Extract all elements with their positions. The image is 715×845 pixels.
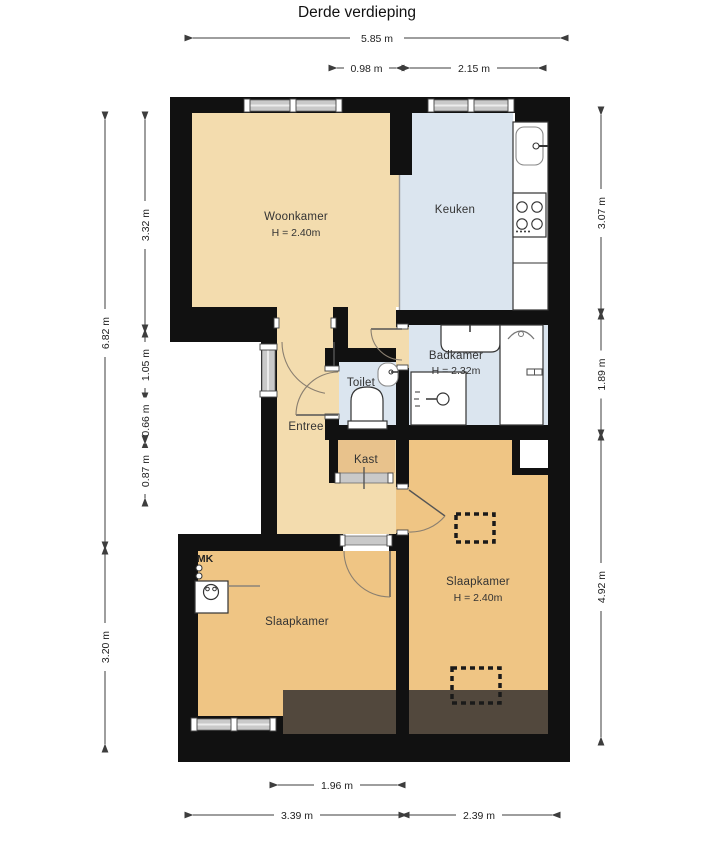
svg-text:5.85 m: 5.85 m (361, 33, 393, 45)
dim-left-inner-3: 0.66 m (138, 398, 152, 444)
room-woonkamer (192, 113, 399, 307)
svg-text:3.39 m: 3.39 m (281, 810, 313, 822)
room-slaapkamer-links-strip (198, 690, 283, 716)
label-badkamer: Badkamer (429, 350, 483, 362)
label-toilet: Toilet (347, 377, 376, 389)
svg-text:0.98 m: 0.98 m (350, 63, 382, 75)
label-woonkamer: Woonkamer (264, 211, 328, 223)
dim-bottom-roof: 1.96 m (278, 778, 397, 792)
dim-top-passage: 0.98 m (337, 61, 396, 75)
dim-left-inner-1: 3.32 m (138, 120, 152, 329)
label-slaapkamer-rechts-height: H = 2.40m (454, 592, 503, 604)
dim-right-slaapkamer: 4.92 m (594, 438, 608, 737)
label-woonkamer-height: H = 2.40m (272, 227, 321, 239)
label-slaapkamer-rechts: Slaapkamer (446, 576, 510, 588)
dim-top-overall: 5.85 m (193, 31, 560, 45)
room-slaapkamer-rechts (409, 440, 548, 690)
shower-icon (411, 372, 466, 425)
dim-left-outer-upper: 6.82 m (98, 120, 112, 546)
label-badkamer-height: H = 2.32m (432, 365, 481, 377)
dim-left-inner-4: 0.87 m (138, 444, 152, 498)
svg-text:1.05 m: 1.05 m (140, 349, 152, 381)
label-meterkast: MK (197, 553, 214, 565)
page-title: Derde verdieping (298, 4, 416, 21)
floorplan-drawing: Derde verdieping (0, 0, 715, 845)
shaft-void (520, 440, 548, 468)
window-woonkamer-top (244, 99, 342, 112)
svg-text:6.82 m: 6.82 m (100, 317, 112, 349)
svg-text:2.15 m: 2.15 m (458, 63, 490, 75)
low-roof-right (409, 690, 548, 734)
dim-right-keuken: 3.07 m (594, 115, 608, 311)
label-entree: Entree (288, 421, 323, 433)
dim-bottom-right: 2.39 m (407, 808, 552, 822)
window-entree-left (260, 344, 277, 397)
label-slaapkamer-links: Slaapkamer (265, 616, 329, 628)
dim-top-keuken: 2.15 m (410, 61, 538, 75)
bathroom-door-panel (500, 325, 543, 425)
label-keuken: Keuken (435, 204, 475, 216)
label-kast: Kast (354, 454, 379, 466)
svg-text:1.89 m: 1.89 m (596, 358, 608, 390)
low-roof-left (283, 690, 396, 734)
svg-text:3.20 m: 3.20 m (100, 631, 112, 663)
svg-text:0.66 m: 0.66 m (140, 404, 152, 436)
svg-text:4.92 m: 4.92 m (596, 571, 608, 603)
svg-text:3.32 m: 3.32 m (140, 209, 152, 241)
svg-text:1.96 m: 1.96 m (321, 780, 353, 792)
dim-left-outer-lower: 3.20 m (98, 550, 112, 744)
dim-right-badkamer: 1.89 m (594, 317, 608, 432)
svg-text:0.87 m: 0.87 m (140, 455, 152, 487)
dim-left-inner-2: 1.05 m (138, 333, 152, 397)
floorplan-page: Derde verdieping (0, 0, 715, 845)
svg-text:2.39 m: 2.39 m (463, 810, 495, 822)
bathroom-basin-icon (441, 325, 500, 352)
svg-text:3.07 m: 3.07 m (596, 197, 608, 229)
window-slaapkamer-bottom (191, 718, 276, 731)
dim-bottom-left: 3.39 m (193, 808, 401, 822)
window-keuken-top (428, 99, 514, 112)
kitchen-counter-icon (513, 122, 548, 310)
